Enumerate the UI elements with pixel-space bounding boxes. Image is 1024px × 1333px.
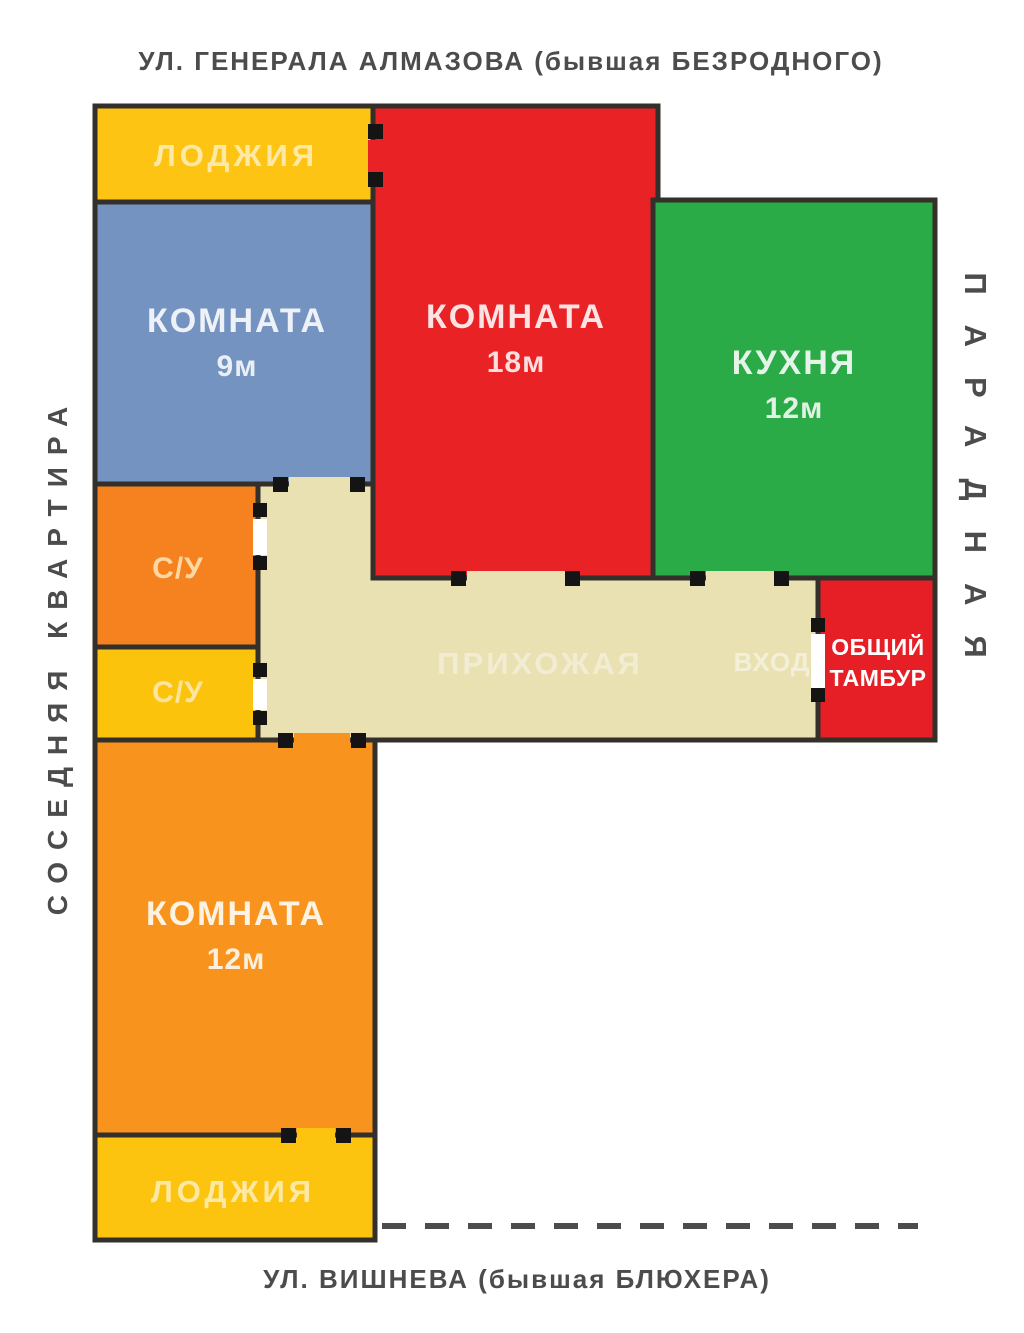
- label-tambur-line2: ТАМБУР: [830, 665, 927, 691]
- door-tick: [565, 571, 580, 586]
- door-tick: [253, 503, 267, 517]
- door-gap: [289, 477, 350, 491]
- label-room9-area: 9м: [217, 350, 258, 383]
- door-tick: [253, 711, 267, 725]
- label-tambur-line1: ОБЩИЙ: [831, 633, 924, 660]
- room-12m: [95, 740, 375, 1135]
- label-su-upper: С/У: [152, 552, 204, 585]
- label-su-lower: С/У: [152, 676, 204, 709]
- door-kitchen-hallway: [690, 571, 789, 586]
- side-label-paradnaya: ПАРАДНАЯ: [958, 272, 993, 687]
- label-kitchen: КУХНЯ: [732, 344, 856, 382]
- door-room12-loggia-bottom: [281, 1128, 351, 1143]
- door-tick: [273, 477, 288, 492]
- door-hallway-tambur: [811, 618, 825, 702]
- label-hallway: ПРИХОЖАЯ: [437, 646, 643, 681]
- door-tick: [281, 1128, 296, 1143]
- door-su-lower-hallway: [253, 663, 267, 725]
- label-loggia-top: ЛОДЖИЯ: [154, 138, 318, 173]
- room-kitchen: [653, 200, 935, 578]
- door-loggia-top-room18: [368, 124, 383, 187]
- label-room9: КОМНАТА: [147, 302, 327, 340]
- door-room9-hallway: [273, 477, 365, 492]
- door-gap: [253, 519, 267, 555]
- door-tick: [278, 733, 293, 748]
- label-kitchen-area: 12м: [765, 392, 824, 425]
- door-tick: [811, 618, 825, 632]
- label-loggia-bottom: ЛОДЖИЯ: [151, 1174, 315, 1209]
- door-tick: [368, 172, 383, 187]
- door-tick: [350, 477, 365, 492]
- room-18m: [373, 106, 658, 578]
- door-gap: [368, 140, 382, 172]
- door-hallway-room12: [278, 733, 366, 748]
- door-room18-hallway: [451, 571, 580, 586]
- door-tick: [811, 688, 825, 702]
- floor-plan: УЛ. ГЕНЕРАЛА АЛМАЗОВА (бывшая БЕЗРОДНОГО…: [0, 0, 1024, 1333]
- door-su-upper-hallway: [253, 503, 267, 570]
- door-tick: [368, 124, 383, 139]
- door-tick: [351, 733, 366, 748]
- door-gap: [253, 679, 267, 710]
- label-room12-area: 12м: [207, 943, 266, 976]
- label-room12: КОМНАТА: [146, 895, 326, 933]
- label-entrance: ВХОД: [734, 647, 811, 677]
- label-room18-area: 18м: [487, 346, 546, 379]
- door-tick: [451, 571, 466, 586]
- street-label-bottom: УЛ. ВИШНЕВА (бывшая БЛЮХЕРА): [263, 1264, 771, 1294]
- door-gap: [294, 733, 350, 747]
- door-gap: [297, 1128, 335, 1142]
- room-9m: [95, 202, 378, 484]
- label-room18: КОМНАТА: [426, 298, 606, 336]
- door-tick: [336, 1128, 351, 1143]
- side-label-neighbor-apartment: СОСЕДНЯЯ КВАРТИРА: [42, 395, 73, 916]
- door-gap: [811, 634, 825, 688]
- door-gap: [706, 571, 774, 585]
- door-tick: [690, 571, 705, 586]
- door-tick: [253, 663, 267, 677]
- door-tick: [774, 571, 789, 586]
- door-gap: [467, 571, 565, 585]
- floor-plan-page: УЛ. ГЕНЕРАЛА АЛМАЗОВА (бывшая БЕЗРОДНОГО…: [0, 0, 1024, 1333]
- door-tick: [253, 556, 267, 570]
- street-label-top: УЛ. ГЕНЕРАЛА АЛМАЗОВА (бывшая БЕЗРОДНОГО…: [138, 46, 883, 76]
